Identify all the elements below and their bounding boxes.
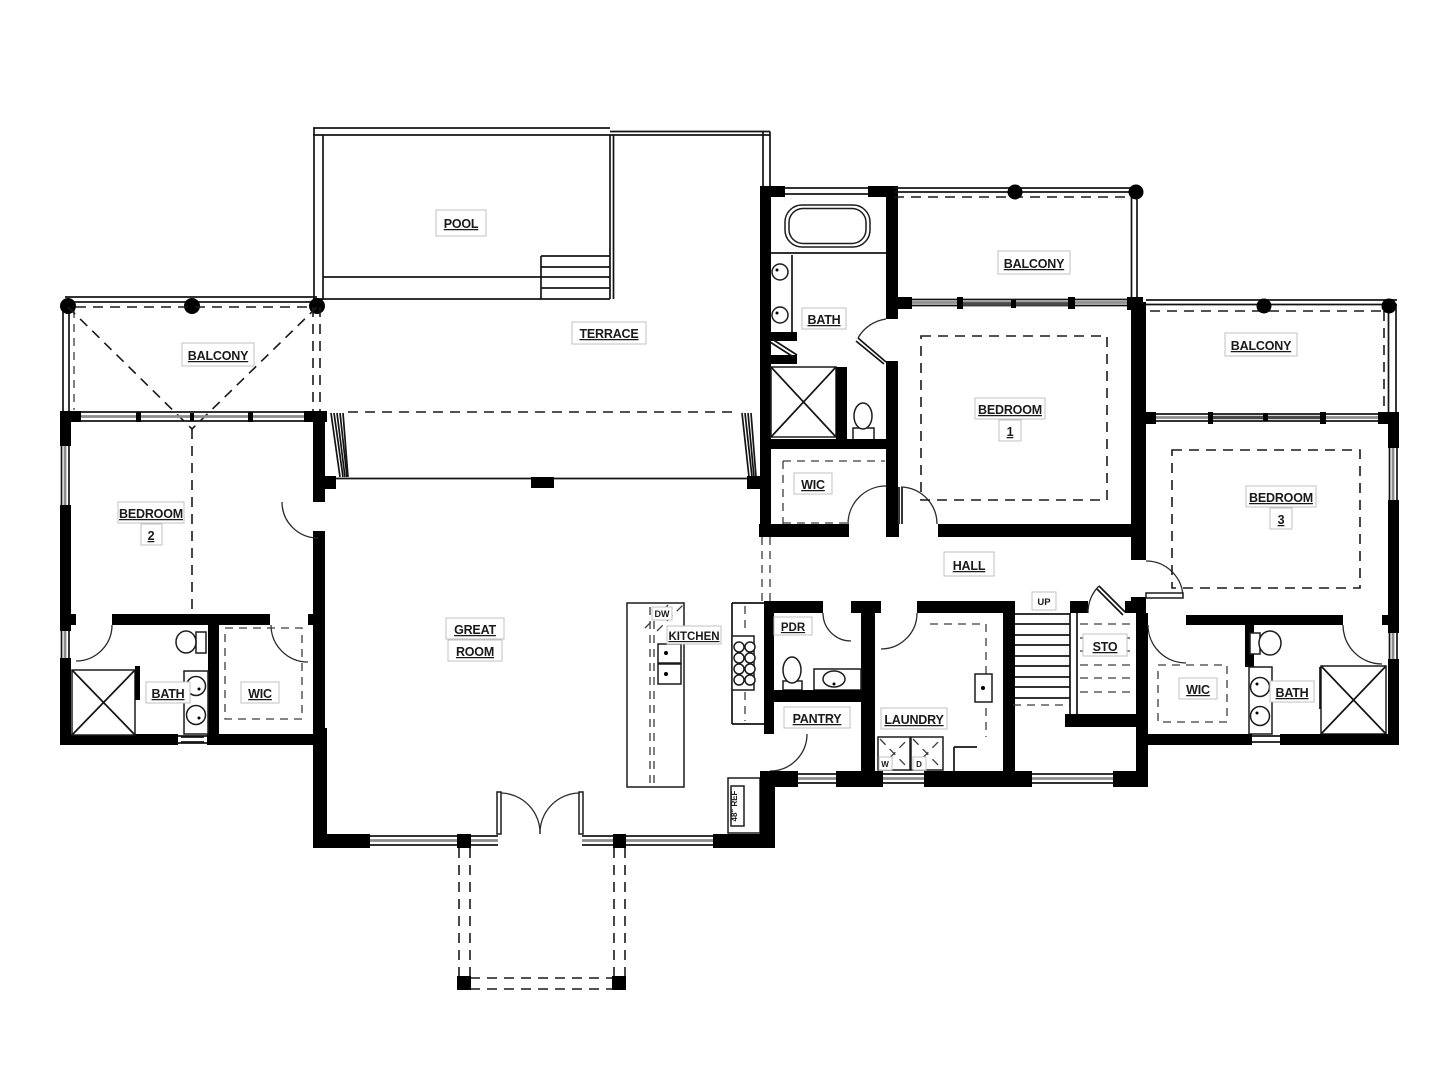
svg-text:BATH: BATH [152,687,185,701]
svg-text:BATH: BATH [1276,686,1309,700]
svg-text:HALL: HALL [953,559,986,573]
svg-text:WIC: WIC [248,687,272,701]
svg-text:ROOM: ROOM [456,645,494,659]
svg-text:STO: STO [1093,640,1118,654]
svg-text:KITCHEN: KITCHEN [668,631,719,643]
svg-text:DW: DW [655,609,670,619]
svg-text:WIC: WIC [1186,683,1210,697]
svg-text:W: W [881,760,889,769]
svg-text:2: 2 [148,529,155,543]
svg-text:BEDROOM: BEDROOM [119,507,183,521]
svg-text:LAUNDRY: LAUNDRY [884,713,944,727]
svg-text:POOL: POOL [444,217,479,231]
svg-text:BATH: BATH [808,313,841,327]
svg-text:WIC: WIC [801,478,825,492]
svg-text:BALCONY: BALCONY [1004,257,1065,271]
svg-text:BALCONY: BALCONY [188,349,249,363]
svg-text:BALCONY: BALCONY [1231,339,1292,353]
svg-text:1: 1 [1007,425,1014,439]
svg-text:PDR: PDR [781,622,806,634]
svg-text:D: D [916,760,922,769]
svg-text:BEDROOM: BEDROOM [978,403,1042,417]
svg-text:GREAT: GREAT [454,623,496,637]
svg-text:PANTRY: PANTRY [793,712,843,726]
svg-text:UP: UP [1037,597,1051,608]
svg-text:TERRACE: TERRACE [579,327,638,341]
svg-text:3: 3 [1278,513,1285,527]
svg-text:48" REF: 48" REF [730,790,739,821]
svg-text:BEDROOM: BEDROOM [1249,491,1313,505]
